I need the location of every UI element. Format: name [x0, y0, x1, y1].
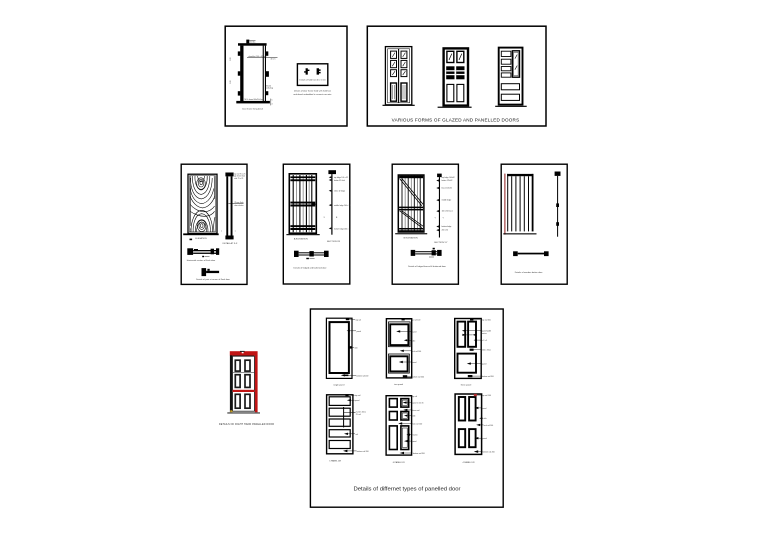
svg-text:DETAILS OF RIGHT HAND PANELLED: DETAILS OF RIGHT HAND PANELLED DOOR — [219, 423, 274, 426]
svg-text:SECTION-YY: SECTION-YY — [434, 242, 448, 244]
svg-text:5 PANEL DR: 5 PANEL DR — [329, 460, 341, 463]
svg-text:middle ledge 200 x 32: middle ledge 200 x 32 — [334, 205, 351, 207]
svg-text:x 2 x 5: x 2 x 5 — [482, 340, 487, 342]
svg-text:panel: panel — [357, 331, 362, 333]
svg-text:top rail: top rail — [356, 318, 362, 321]
svg-text:panel 1 mm th: panel 1 mm th — [412, 402, 423, 405]
svg-text:panel: panel — [355, 400, 360, 402]
svg-text:Details of wooden batten door: Details of wooden batten door — [515, 271, 543, 274]
svg-text:Details of door frame fixed wi: Details of door frame fixed with hold fa… — [294, 90, 331, 93]
svg-text:SECTION XX: SECTION XX — [327, 241, 341, 243]
svg-text:5: 5 — [272, 100, 273, 102]
svg-text:brace 125x32: brace 125x32 — [442, 187, 452, 190]
svg-text:Details of ledged and battened: Details of ledged and battened door — [294, 266, 327, 269]
svg-text:lock rail 100: lock rail 100 — [413, 424, 423, 426]
svg-text:middle ledge: middle ledge — [442, 200, 452, 202]
svg-text:Details of ledged braced & bat: Details of ledged braced & battened door — [408, 265, 446, 268]
svg-text:1.00: 1.00 — [230, 58, 232, 62]
svg-text:100 x 3 bar: 100 x 3 bar — [482, 350, 491, 352]
svg-text:muntin: muntin — [412, 434, 417, 437]
svg-text:Door frame fixing detail: Door frame fixing detail — [242, 107, 263, 110]
svg-text:Details of joint at corner of: Details of joint at corner of flush door — [196, 278, 230, 281]
svg-text:bottom rail 200: bottom rail 200 — [482, 375, 494, 378]
svg-text:single panel: single panel — [333, 384, 345, 386]
svg-text:wall plug: wall plug — [266, 88, 273, 90]
svg-text:M.S. dowel 40x25x3 mm: M.S. dowel 40x25x3 mm — [245, 99, 265, 101]
svg-text:x: x — [221, 230, 222, 232]
svg-text:bottom rail 200: bottom rail 200 — [356, 374, 368, 377]
svg-text:panel: panel — [412, 331, 417, 333]
svg-text:bottom rail 200: bottom rail 200 — [357, 450, 369, 453]
svg-text:200 x 32: 200 x 32 — [442, 230, 449, 232]
svg-text:top rail: top rail — [412, 395, 418, 398]
svg-text:door shutter: door shutter — [234, 204, 243, 207]
svg-text:25 rail: 25 rail — [356, 414, 361, 416]
svg-text:stile: stile — [412, 415, 415, 418]
svg-text:stile 75 x 25: stile 75 x 25 — [234, 177, 243, 180]
svg-text:stile: stile — [412, 339, 415, 342]
svg-text:bottom ledge: bottom ledge — [442, 225, 452, 228]
svg-text:6 PANEL DR: 6 PANEL DR — [393, 461, 405, 464]
svg-text:stile: stile — [354, 346, 357, 349]
svg-text:top rail 100: top rail 100 — [482, 394, 491, 397]
svg-text:DETAIL AT X-X: DETAIL AT X-X — [223, 242, 238, 245]
svg-text:panel: panel — [412, 441, 417, 443]
svg-text:panel: panel — [482, 408, 487, 410]
svg-text:Horizontal section of flush do: Horizontal section of flush door — [187, 259, 216, 262]
svg-text:ELEVATION: ELEVATION — [195, 237, 207, 240]
svg-text:lock rail 100: lock rail 100 — [484, 425, 494, 427]
svg-text:40 x 5: 40 x 5 — [271, 59, 276, 61]
svg-text:batten 32 thick: batten 32 thick — [334, 179, 345, 182]
svg-text:35 mm flush: 35 mm flush — [234, 202, 243, 204]
svg-text:100 x 32 brace: 100 x 32 brace — [442, 210, 453, 213]
svg-text:top rail 100: top rail 100 — [482, 318, 491, 321]
svg-text:3: 3 — [324, 217, 325, 219]
svg-text:varies: varies — [482, 333, 487, 335]
svg-text:lock rail 100: lock rail 100 — [412, 351, 422, 353]
svg-text:stile: stile — [483, 417, 486, 420]
svg-text:100 x 32 ledge: 100 x 32 ledge — [334, 191, 345, 193]
svg-text:Details of hold fast 40 x 5 mm: Details of hold fast 40 x 5 mm — [299, 79, 326, 82]
svg-text:panel: panel — [482, 364, 487, 366]
svg-text:top rail 100: top rail 100 — [411, 318, 420, 321]
svg-text:B ELEVATION: B ELEVATION — [404, 236, 418, 239]
svg-text:top rail: top rail — [355, 394, 361, 397]
svg-text:top ledge 100 x 32: top ledge 100 x 32 — [334, 176, 348, 179]
svg-text:bottom rail 200: bottom rail 200 — [483, 451, 495, 454]
svg-text:bottom rail 200: bottom rail 200 — [412, 375, 424, 378]
svg-text:bottom rail 200: bottom rail 200 — [413, 452, 425, 455]
svg-text:and dowel embedded in cement c: and dowel embedded in cement concrete — [293, 93, 332, 96]
svg-text:three panel: three panel — [461, 384, 472, 387]
svg-text:Details of differnet types of: Details of differnet types of panelled d… — [354, 487, 461, 493]
svg-text:1.00: 1.00 — [230, 81, 232, 85]
svg-text:panel: panel — [412, 362, 417, 364]
svg-text:frieze rail: frieze rail — [412, 410, 420, 412]
svg-text:two panel: two panel — [394, 383, 403, 386]
svg-text:A ELEVATION: A ELEVATION — [294, 237, 308, 240]
svg-text:4 PANEL DR: 4 PANEL DR — [463, 461, 475, 464]
svg-text:x: x — [235, 230, 236, 232]
svg-text:panel: panel — [483, 438, 488, 440]
svg-text:chowkhat 100 x 65 mm: chowkhat 100 x 65 mm — [248, 55, 267, 58]
svg-text:top ledge 100x32: top ledge 100x32 — [442, 176, 455, 179]
svg-text:batten 125x32: batten 125x32 — [442, 179, 453, 182]
svg-text:bottom ledge 200 x 32: bottom ledge 200 x 32 — [334, 227, 351, 230]
svg-text:40 dia: 40 dia — [250, 41, 255, 43]
svg-text:VARIOUS FORMS OF GLAZED AND PA: VARIOUS FORMS OF GLAZED AND PANELLED DOO… — [392, 118, 520, 123]
svg-text:4: 4 — [272, 104, 273, 106]
